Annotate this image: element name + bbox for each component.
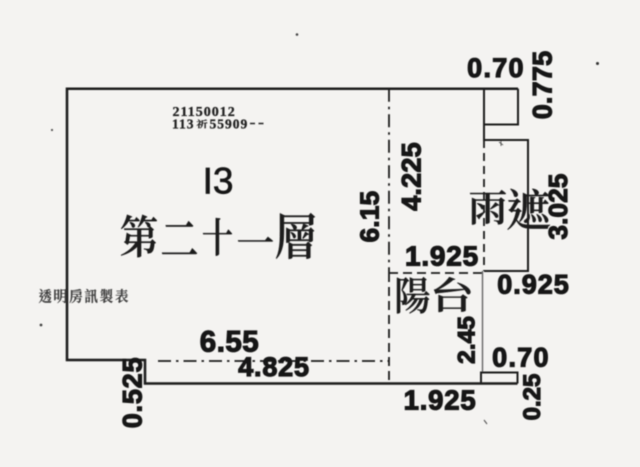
- svg-text:1.925: 1.925: [405, 240, 479, 271]
- svg-text:0.775: 0.775: [528, 51, 558, 120]
- svg-text:I3: I3: [203, 161, 234, 202]
- svg-text:0.70: 0.70: [492, 343, 550, 373]
- svg-text:0.525: 0.525: [117, 357, 147, 429]
- svg-text:1.925: 1.925: [404, 385, 477, 416]
- svg-text:4.825: 4.825: [238, 352, 310, 382]
- svg-text:0.25: 0.25: [519, 374, 546, 421]
- svg-text:3.025: 3.025: [543, 173, 573, 239]
- svg-text:55909: 55909: [210, 117, 249, 132]
- svg-text:2.45: 2.45: [454, 316, 481, 364]
- svg-text:113: 113: [172, 117, 195, 132]
- svg-text:4.225: 4.225: [397, 142, 427, 211]
- svg-text:6.15: 6.15: [355, 191, 385, 243]
- svg-text:0.70: 0.70: [467, 53, 525, 83]
- svg-text:0.925: 0.925: [497, 270, 570, 300]
